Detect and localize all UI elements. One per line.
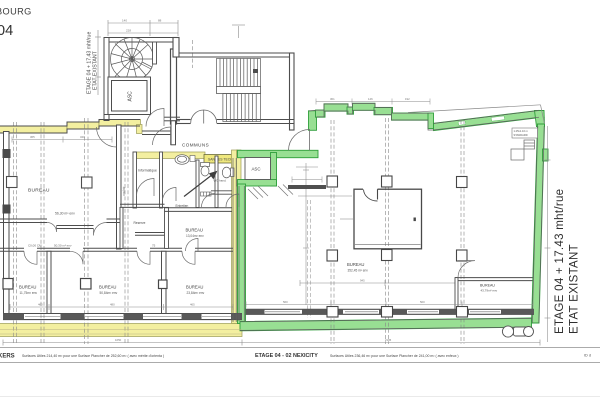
svg-text:146: 146 <box>368 97 373 101</box>
svg-text:Surfaces Utiles 214,40 m² pour: Surfaces Utiles 214,40 m² pour une Surfa… <box>22 354 164 358</box>
svg-text:BUREAU: BUREAU <box>99 285 116 290</box>
svg-text:ETAGE 04 + 17.43 mht/rue: ETAGE 04 + 17.43 mht/rue <box>554 189 566 334</box>
svg-text:04: 04 <box>0 23 13 39</box>
svg-text:Reserve: Reserve <box>134 221 146 225</box>
svg-text:1650: 1650 <box>115 338 122 342</box>
svg-text:352,45 m² env: 352,45 m² env <box>348 269 369 273</box>
svg-text:228: 228 <box>126 29 131 33</box>
svg-text:88: 88 <box>158 19 162 23</box>
svg-text:945: 945 <box>360 279 365 283</box>
svg-text:ASC: ASC <box>252 167 261 172</box>
svg-text:365: 365 <box>30 135 35 139</box>
svg-text:50,30 m² env: 50,30 m² env <box>54 244 72 248</box>
svg-text:BUREAU: BUREAU <box>480 284 495 288</box>
svg-text:BUREAU: BUREAU <box>186 228 203 233</box>
svg-text:ETAGE 04 - 02 NEXICITY: ETAGE 04 - 02 NEXICITY <box>255 353 318 359</box>
svg-text:BUREAU: BUREAU <box>347 262 364 267</box>
svg-text:COMMUNS: COMMUNS <box>182 143 209 148</box>
svg-text:STANDARD: STANDARD <box>514 133 528 137</box>
svg-text:2105: 2105 <box>385 338 392 342</box>
svg-text:465: 465 <box>190 303 195 307</box>
svg-text:BUREAU: BUREAU <box>28 188 50 194</box>
svg-text:140: 140 <box>122 19 127 23</box>
svg-text:ASC: ASC <box>128 91 134 102</box>
svg-text:50,84m² env: 50,84m² env <box>100 291 118 295</box>
svg-text:1.25x1.10 m: 1.25x1.10 m <box>514 129 528 133</box>
svg-text:460: 460 <box>38 303 43 307</box>
svg-text:Informatique: Informatique <box>138 169 157 173</box>
svg-text:301: 301 <box>330 97 335 101</box>
svg-text:11,75m² env: 11,75m² env <box>20 291 38 295</box>
svg-text:75: 75 <box>152 244 156 248</box>
svg-text:192: 192 <box>405 97 410 101</box>
svg-text:KERS: KERS <box>0 354 15 360</box>
svg-text:ETAT EXISTANT: ETAT EXISTANT <box>569 244 581 334</box>
svg-text:C0,00 CM: C0,00 CM <box>28 244 42 248</box>
svg-text:BUREAU: BUREAU <box>186 285 203 290</box>
svg-text:ID d: ID d <box>584 354 591 358</box>
svg-text:23,84m² env: 23,84m² env <box>187 291 205 295</box>
svg-text:BUREAU: BUREAU <box>19 285 36 290</box>
svg-text:43,79m² env: 43,79m² env <box>481 289 498 293</box>
svg-text:480: 480 <box>110 303 115 307</box>
svg-text:340: 340 <box>80 135 85 139</box>
svg-text:ETAT EXISTANT: ETAT EXISTANT <box>93 50 99 90</box>
svg-text:500: 500 <box>420 300 425 304</box>
svg-text:560: 560 <box>283 300 288 304</box>
svg-text:56,30 m² env: 56,30 m² env <box>55 212 75 216</box>
svg-text:Surfaces Utiles 236,46 m² pour: Surfaces Utiles 236,46 m² pour une Surfa… <box>330 354 459 358</box>
svg-text:13,04m² env: 13,04m² env <box>186 234 204 238</box>
svg-text:WC hand.: WC hand. <box>214 179 227 183</box>
svg-text:BOURG: BOURG <box>0 7 32 17</box>
svg-text:couloir: couloir <box>122 186 126 196</box>
